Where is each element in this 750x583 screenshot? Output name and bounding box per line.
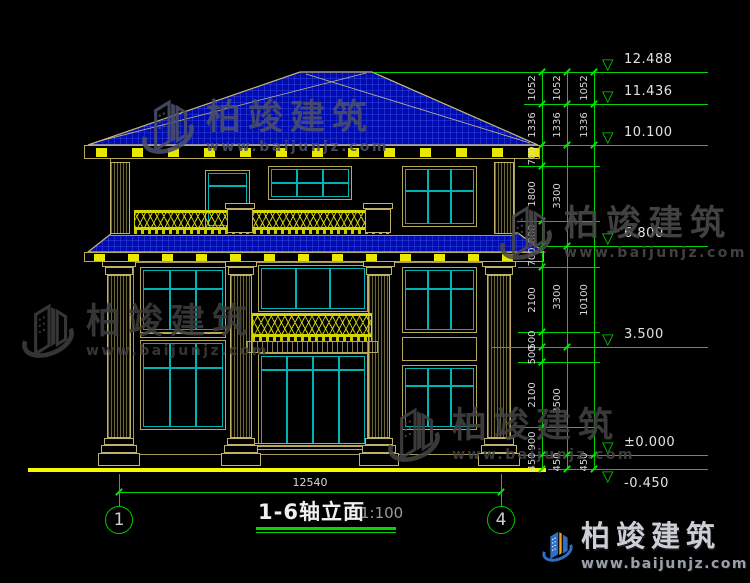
watermark-building-icon	[140, 94, 196, 160]
brand-name: 柏竣建筑	[581, 522, 748, 551]
drawing-title: 1-6轴立面	[258, 502, 365, 523]
watermark-url: www.baijunjz.com	[206, 140, 389, 154]
watermark-brand: 柏竣建筑	[206, 101, 389, 136]
watermark: 柏竣建筑www.baijunjz.com	[140, 94, 389, 160]
watermark-building-icon	[498, 200, 554, 266]
watermark-layer: 柏竣建筑www.baijunjz.com柏竣建筑www.baijunjz.com…	[0, 0, 750, 583]
title-underline-thick	[256, 527, 396, 530]
brand-url: www.baijunjz.com	[581, 557, 748, 571]
cad-canvas: ▽12.488▽11.436▽10.100▽6.800▽3.500▽±0.000…	[0, 0, 750, 583]
watermark-url: www.baijunjz.com	[86, 344, 269, 358]
title-underline-thin	[256, 532, 396, 533]
watermark-brand: 柏竣建筑	[564, 207, 747, 242]
axis-bubble-1: 1	[105, 506, 133, 534]
brand-building-icon	[542, 514, 573, 578]
brand-logo: 柏竣建筑 www.baijunjz.com	[542, 512, 748, 580]
watermark: 柏竣建筑www.baijunjz.com	[498, 200, 747, 266]
watermark-brand: 柏竣建筑	[452, 409, 635, 444]
watermark-url: www.baijunjz.com	[564, 246, 747, 260]
watermark-building-icon	[386, 402, 442, 468]
drawing-scale: 1:100	[360, 506, 403, 521]
watermark: 柏竣建筑www.baijunjz.com	[20, 298, 269, 364]
watermark-url: www.baijunjz.com	[452, 448, 635, 462]
watermark: 柏竣建筑www.baijunjz.com	[386, 402, 635, 468]
axis-bubble-4: 4	[487, 506, 515, 534]
watermark-brand: 柏竣建筑	[86, 305, 269, 340]
watermark-building-icon	[20, 298, 76, 364]
